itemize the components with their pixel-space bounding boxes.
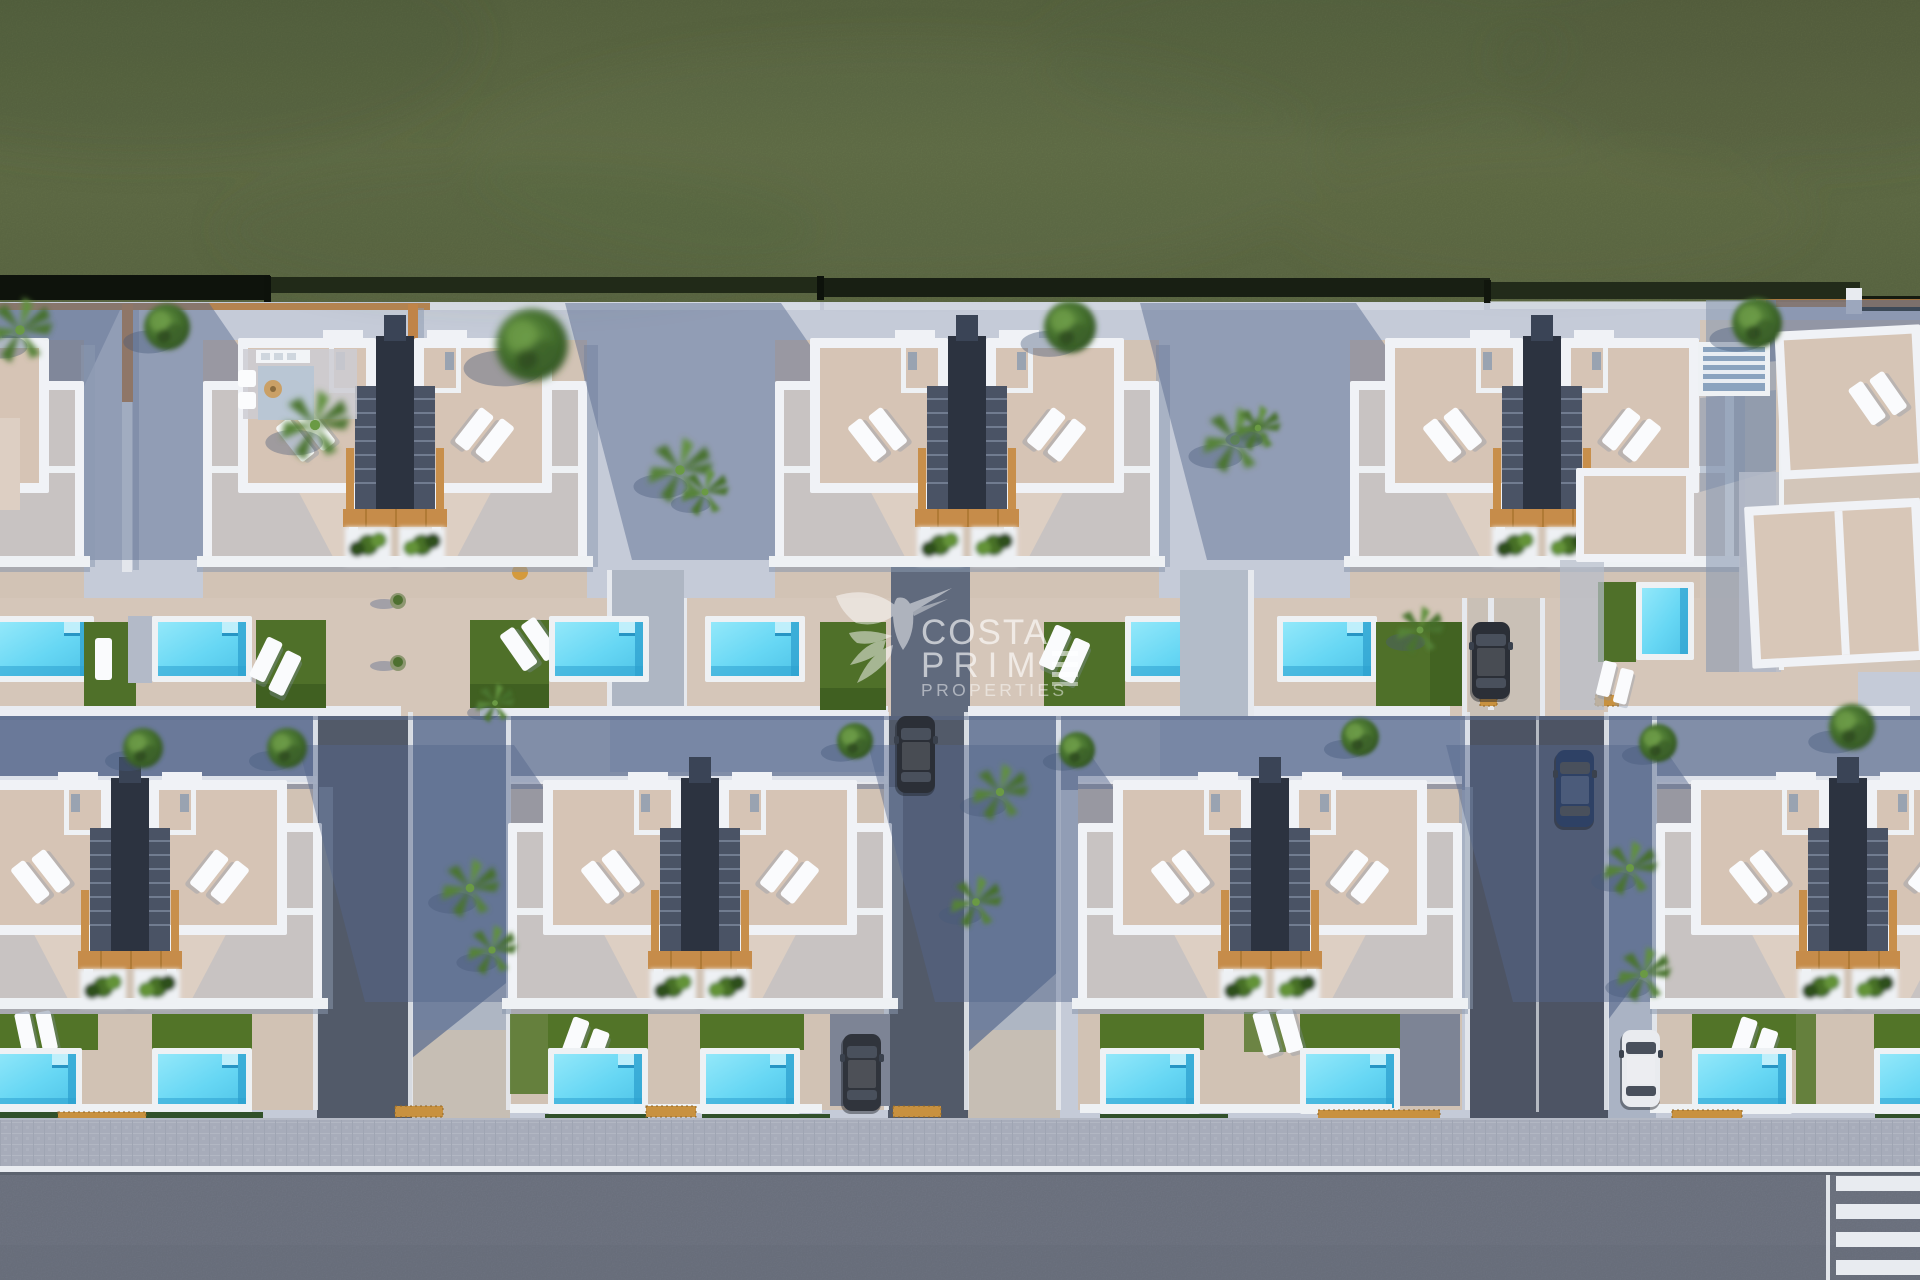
svg-text:PROPERTIES: PROPERTIES bbox=[921, 680, 1068, 700]
